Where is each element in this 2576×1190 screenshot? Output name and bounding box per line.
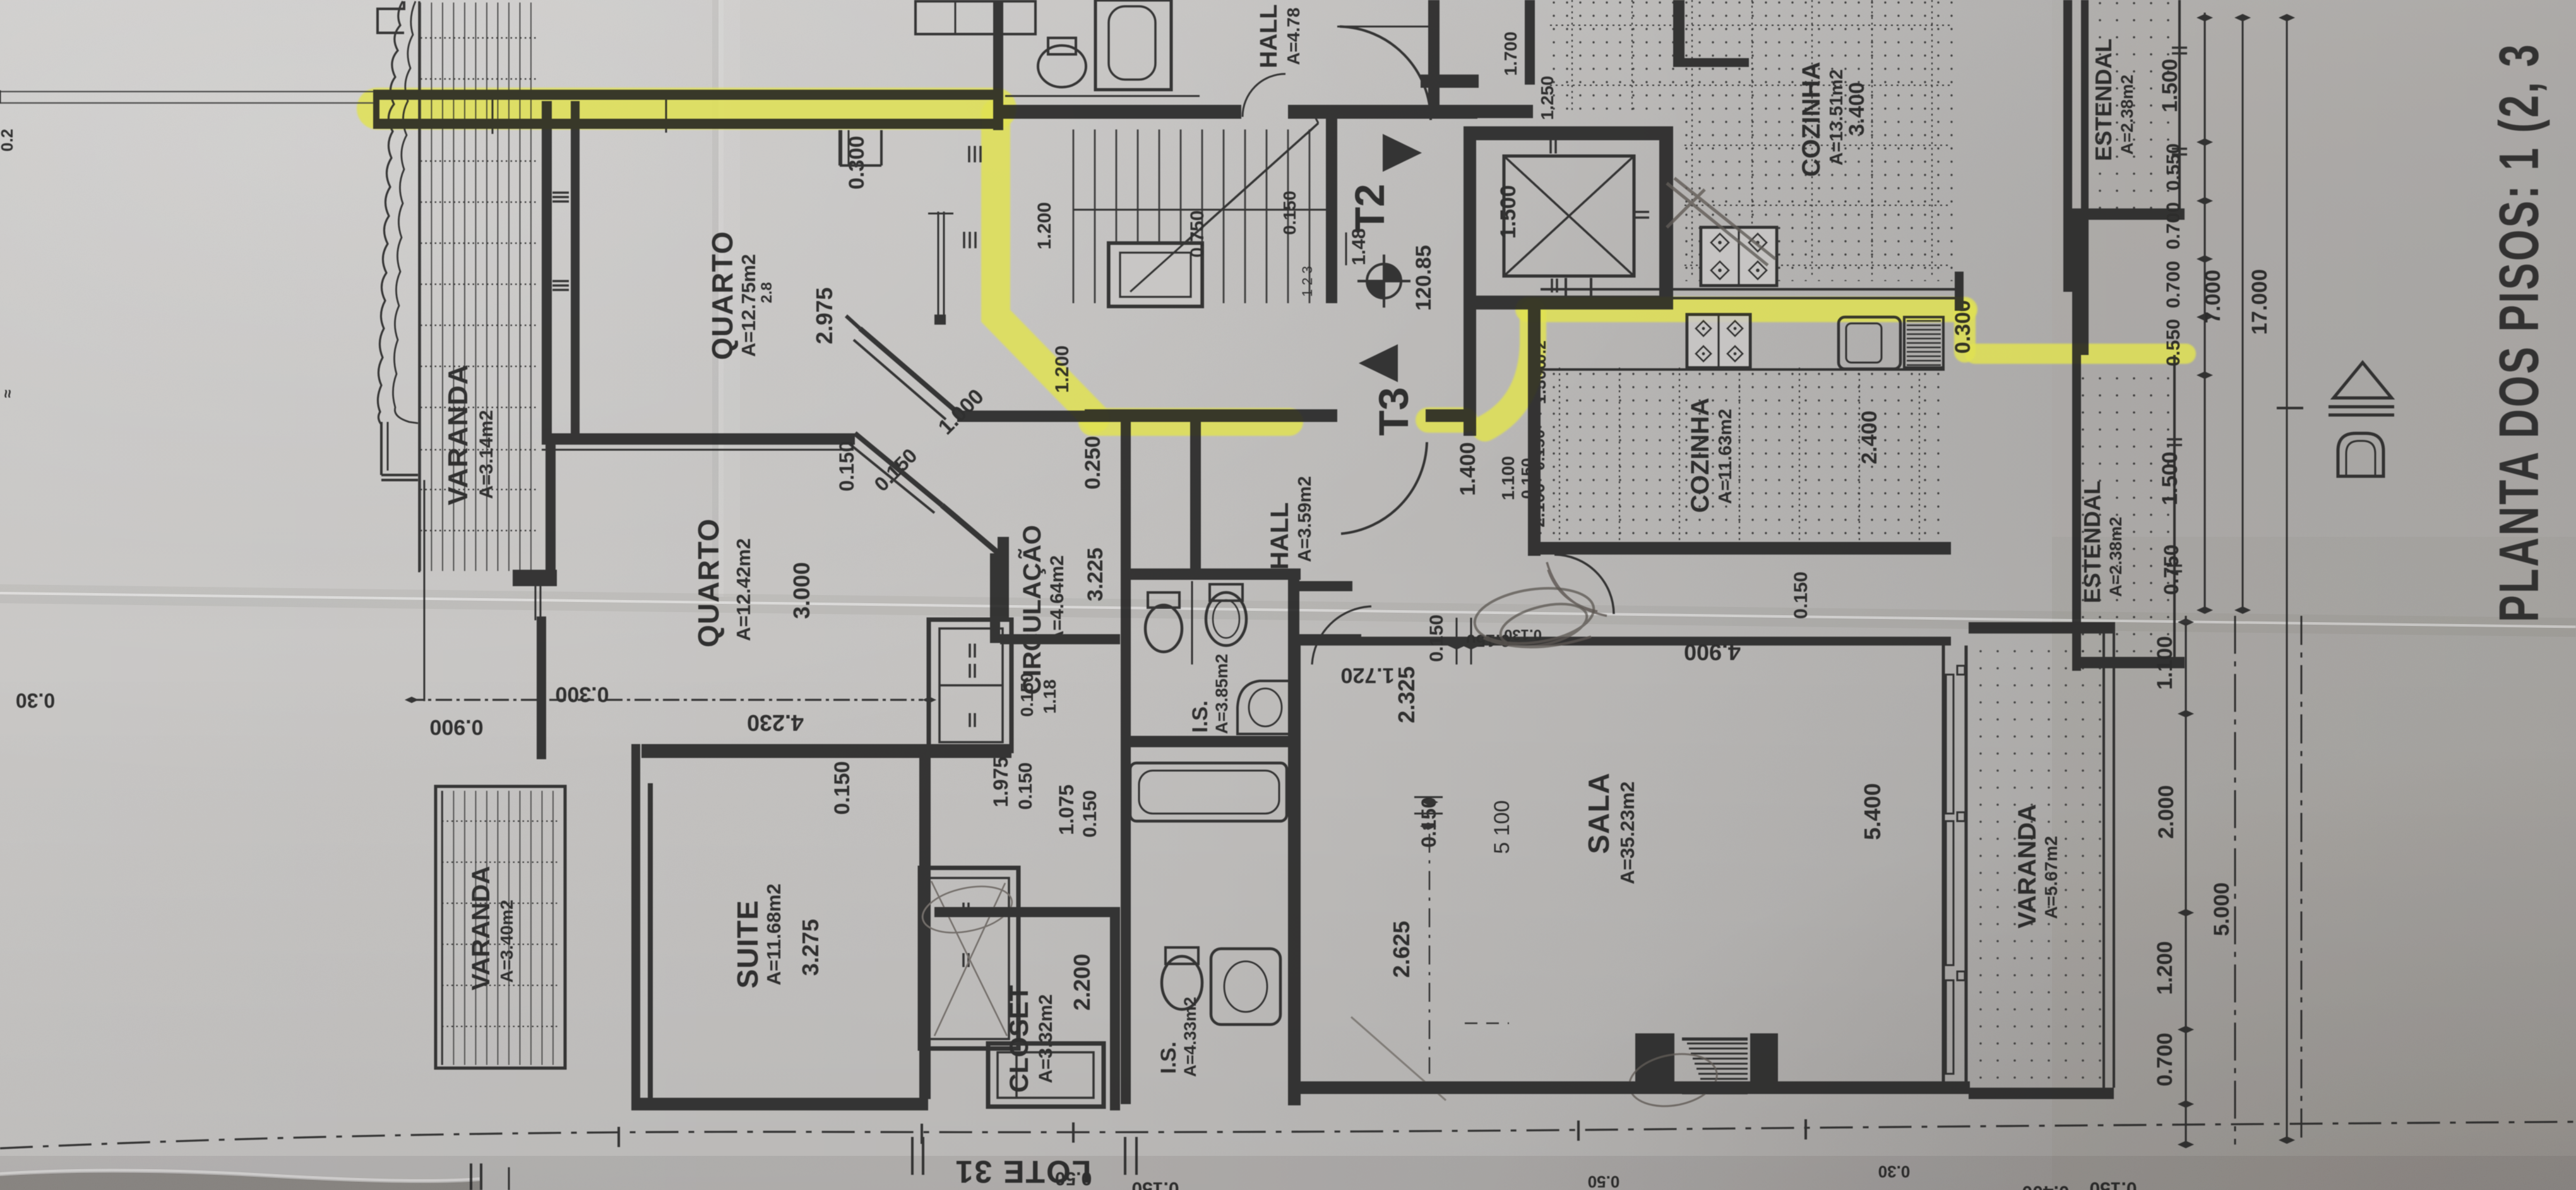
svg-text:VARANDA: VARANDA	[467, 866, 495, 990]
svg-text:2.325: 2.325	[1393, 666, 1419, 723]
svg-text:5.000: 5.000	[2210, 882, 2234, 936]
svg-text:A=35.23m2: A=35.23m2	[1616, 781, 1638, 884]
svg-text:2.200: 2.200	[1069, 954, 1095, 1011]
svg-text:0.50: 0.50	[1055, 1168, 1092, 1189]
svg-text:PLANTA DOS PISOS: 1 (2, 3: PLANTA DOS PISOS: 1 (2, 3	[2488, 42, 2550, 622]
svg-text:I.S.: I.S.	[1157, 1042, 1181, 1074]
svg-text:3.000: 3.000	[789, 562, 814, 619]
svg-text:3.275: 3.275	[797, 919, 823, 976]
svg-text:0.750: 0.750	[2160, 544, 2183, 595]
svg-text:HALL: HALL	[1266, 502, 1294, 570]
svg-text:1.075: 1.075	[1055, 784, 1078, 835]
svg-text:A=11.63m2: A=11.63m2	[1715, 409, 1736, 504]
svg-text:A=4.64m2: A=4.64m2	[1047, 555, 1068, 644]
svg-text:A=4.78: A=4.78	[1284, 8, 1303, 65]
svg-text:1.975: 1.975	[989, 757, 1012, 807]
svg-text:A=4.33m2: A=4.33m2	[1181, 997, 1200, 1077]
svg-text:0.130: 0.130	[1504, 626, 1542, 643]
svg-text:2.975: 2.975	[811, 287, 837, 344]
svg-text:A=2.38m2: A=2.38m2	[2118, 75, 2137, 155]
svg-text:5 100: 5 100	[1490, 800, 1514, 854]
svg-text:1.720: 1.720	[1340, 663, 1394, 687]
svg-text:0.150: 0.150	[1131, 1178, 1179, 1190]
svg-text:SUITE: SUITE	[731, 900, 764, 989]
svg-text:0.150: 0.150	[835, 441, 858, 491]
svg-text:0.150: 0.150	[830, 761, 854, 815]
svg-text:0.250: 0.250	[1081, 436, 1105, 490]
svg-text:3.225: 3.225	[1083, 548, 1107, 601]
svg-text:0.750: 0.750	[1187, 210, 1208, 258]
svg-text:1.500: 1.500	[2158, 59, 2182, 112]
svg-text:1.100: 1.100	[2153, 636, 2177, 690]
svg-text:1.500: 1.500	[1496, 185, 1520, 239]
svg-text:4.230: 4.230	[747, 710, 804, 736]
svg-text:A=12.42m2: A=12.42m2	[732, 538, 754, 641]
svg-text:7.000: 7.000	[2201, 270, 2225, 323]
svg-text:QUARTO: QUARTO	[706, 231, 739, 361]
svg-text:0.50: 0.50	[1588, 1172, 1620, 1190]
svg-text:1.200: 1.200	[2153, 941, 2177, 995]
svg-text:0.150: 0.150	[1017, 673, 1037, 717]
svg-text:0.400: 0.400	[2022, 1182, 2069, 1190]
svg-text:0.150: 0.150	[1015, 762, 1036, 810]
svg-text:A=5.67m2: A=5.67m2	[2041, 836, 2061, 919]
svg-text:2.000: 2.000	[2154, 785, 2178, 839]
svg-text:1.100: 1.100	[1498, 456, 1518, 500]
svg-text:120.85: 120.85	[1412, 245, 1436, 311]
svg-text:2.8: 2.8	[758, 282, 775, 303]
svg-text:1.18: 1.18	[1040, 680, 1059, 714]
svg-text:0.300: 0.300	[555, 682, 609, 706]
svg-text:A=13.51m2: A=13.51m2	[1827, 69, 1847, 165]
svg-text:0.550: 0.550	[2163, 319, 2184, 366]
svg-text:A=12.75m2: A=12.75m2	[737, 254, 760, 357]
svg-text:HALL: HALL	[1256, 4, 1282, 68]
svg-text:A=3.14m2: A=3.14m2	[476, 410, 497, 499]
svg-text:0.30: 0.30	[16, 689, 55, 712]
svg-text:0.150: 0.150	[1080, 790, 1100, 838]
svg-text:A=3.59m2: A=3.59m2	[1295, 476, 1315, 562]
svg-text:A=3.85m2: A=3.85m2	[1212, 654, 1231, 734]
svg-text:1 2 3: 1 2 3	[1299, 266, 1315, 297]
svg-text:COZINHA: COZINHA	[1686, 398, 1714, 513]
svg-text:A=2.38m2: A=2.38m2	[2106, 517, 2125, 597]
svg-text:0.30: 0.30	[1878, 1162, 1911, 1181]
svg-text:≈: ≈	[0, 390, 16, 398]
svg-text:ESTENDAL: ESTENDAL	[2079, 481, 2105, 603]
svg-text:0.2: 0.2	[0, 129, 16, 152]
svg-text:T3: T3	[1370, 387, 1417, 436]
svg-text:CIRCULAÇÃO: CIRCULAÇÃO	[1017, 525, 1046, 695]
svg-text:0.550: 0.550	[2163, 143, 2184, 191]
svg-text:1.400: 1.400	[1456, 442, 1480, 496]
svg-text:CLOSET: CLOSET	[1004, 985, 1034, 1093]
svg-text:0.150: 0.150	[2089, 1178, 2137, 1190]
svg-text:1.200: 1.200	[1052, 346, 1073, 393]
svg-text:A=3.32m2: A=3.32m2	[1035, 994, 1056, 1083]
svg-text:ESTENDAL: ESTENDAL	[2090, 39, 2116, 161]
svg-text:0.700: 0.700	[2163, 202, 2184, 249]
svg-text:SALA: SALA	[1582, 772, 1615, 854]
svg-text:0.150: 0.150	[1426, 615, 1447, 662]
svg-text:3.400: 3.400	[1845, 82, 1869, 136]
svg-text:5.400: 5.400	[1859, 783, 1885, 840]
svg-text:VARANDA: VARANDA	[2013, 804, 2041, 929]
svg-text:1.48: 1.48	[1349, 229, 1369, 265]
svg-text:1.700: 1.700	[1501, 32, 1520, 76]
svg-text:VARANDA: VARANDA	[443, 364, 474, 505]
svg-text:T2: T2	[1346, 184, 1393, 232]
svg-text:A=11.68m2: A=11.68m2	[763, 884, 785, 985]
svg-text:17.000: 17.000	[2248, 269, 2272, 335]
svg-text:I.S.: I.S.	[1188, 700, 1212, 733]
svg-text:A=3.40m2: A=3.40m2	[497, 899, 516, 983]
svg-text:0.700: 0.700	[2163, 261, 2184, 308]
svg-text:0.900: 0.900	[429, 715, 483, 739]
svg-text:4.900: 4.900	[1684, 639, 1741, 665]
svg-text:2.625: 2.625	[1388, 921, 1414, 978]
svg-text:2.400: 2.400	[1857, 411, 1881, 464]
svg-text:COZINHA: COZINHA	[1798, 62, 1825, 177]
svg-text:1.500: 1.500	[2158, 452, 2182, 505]
svg-text:1.200: 1.200	[1034, 202, 1055, 249]
svg-text:0.150: 0.150	[1280, 191, 1299, 235]
svg-text:QUARTO: QUARTO	[692, 519, 725, 648]
svg-text:0.700: 0.700	[2153, 1033, 2177, 1086]
svg-text:0.150: 0.150	[1791, 572, 1811, 619]
